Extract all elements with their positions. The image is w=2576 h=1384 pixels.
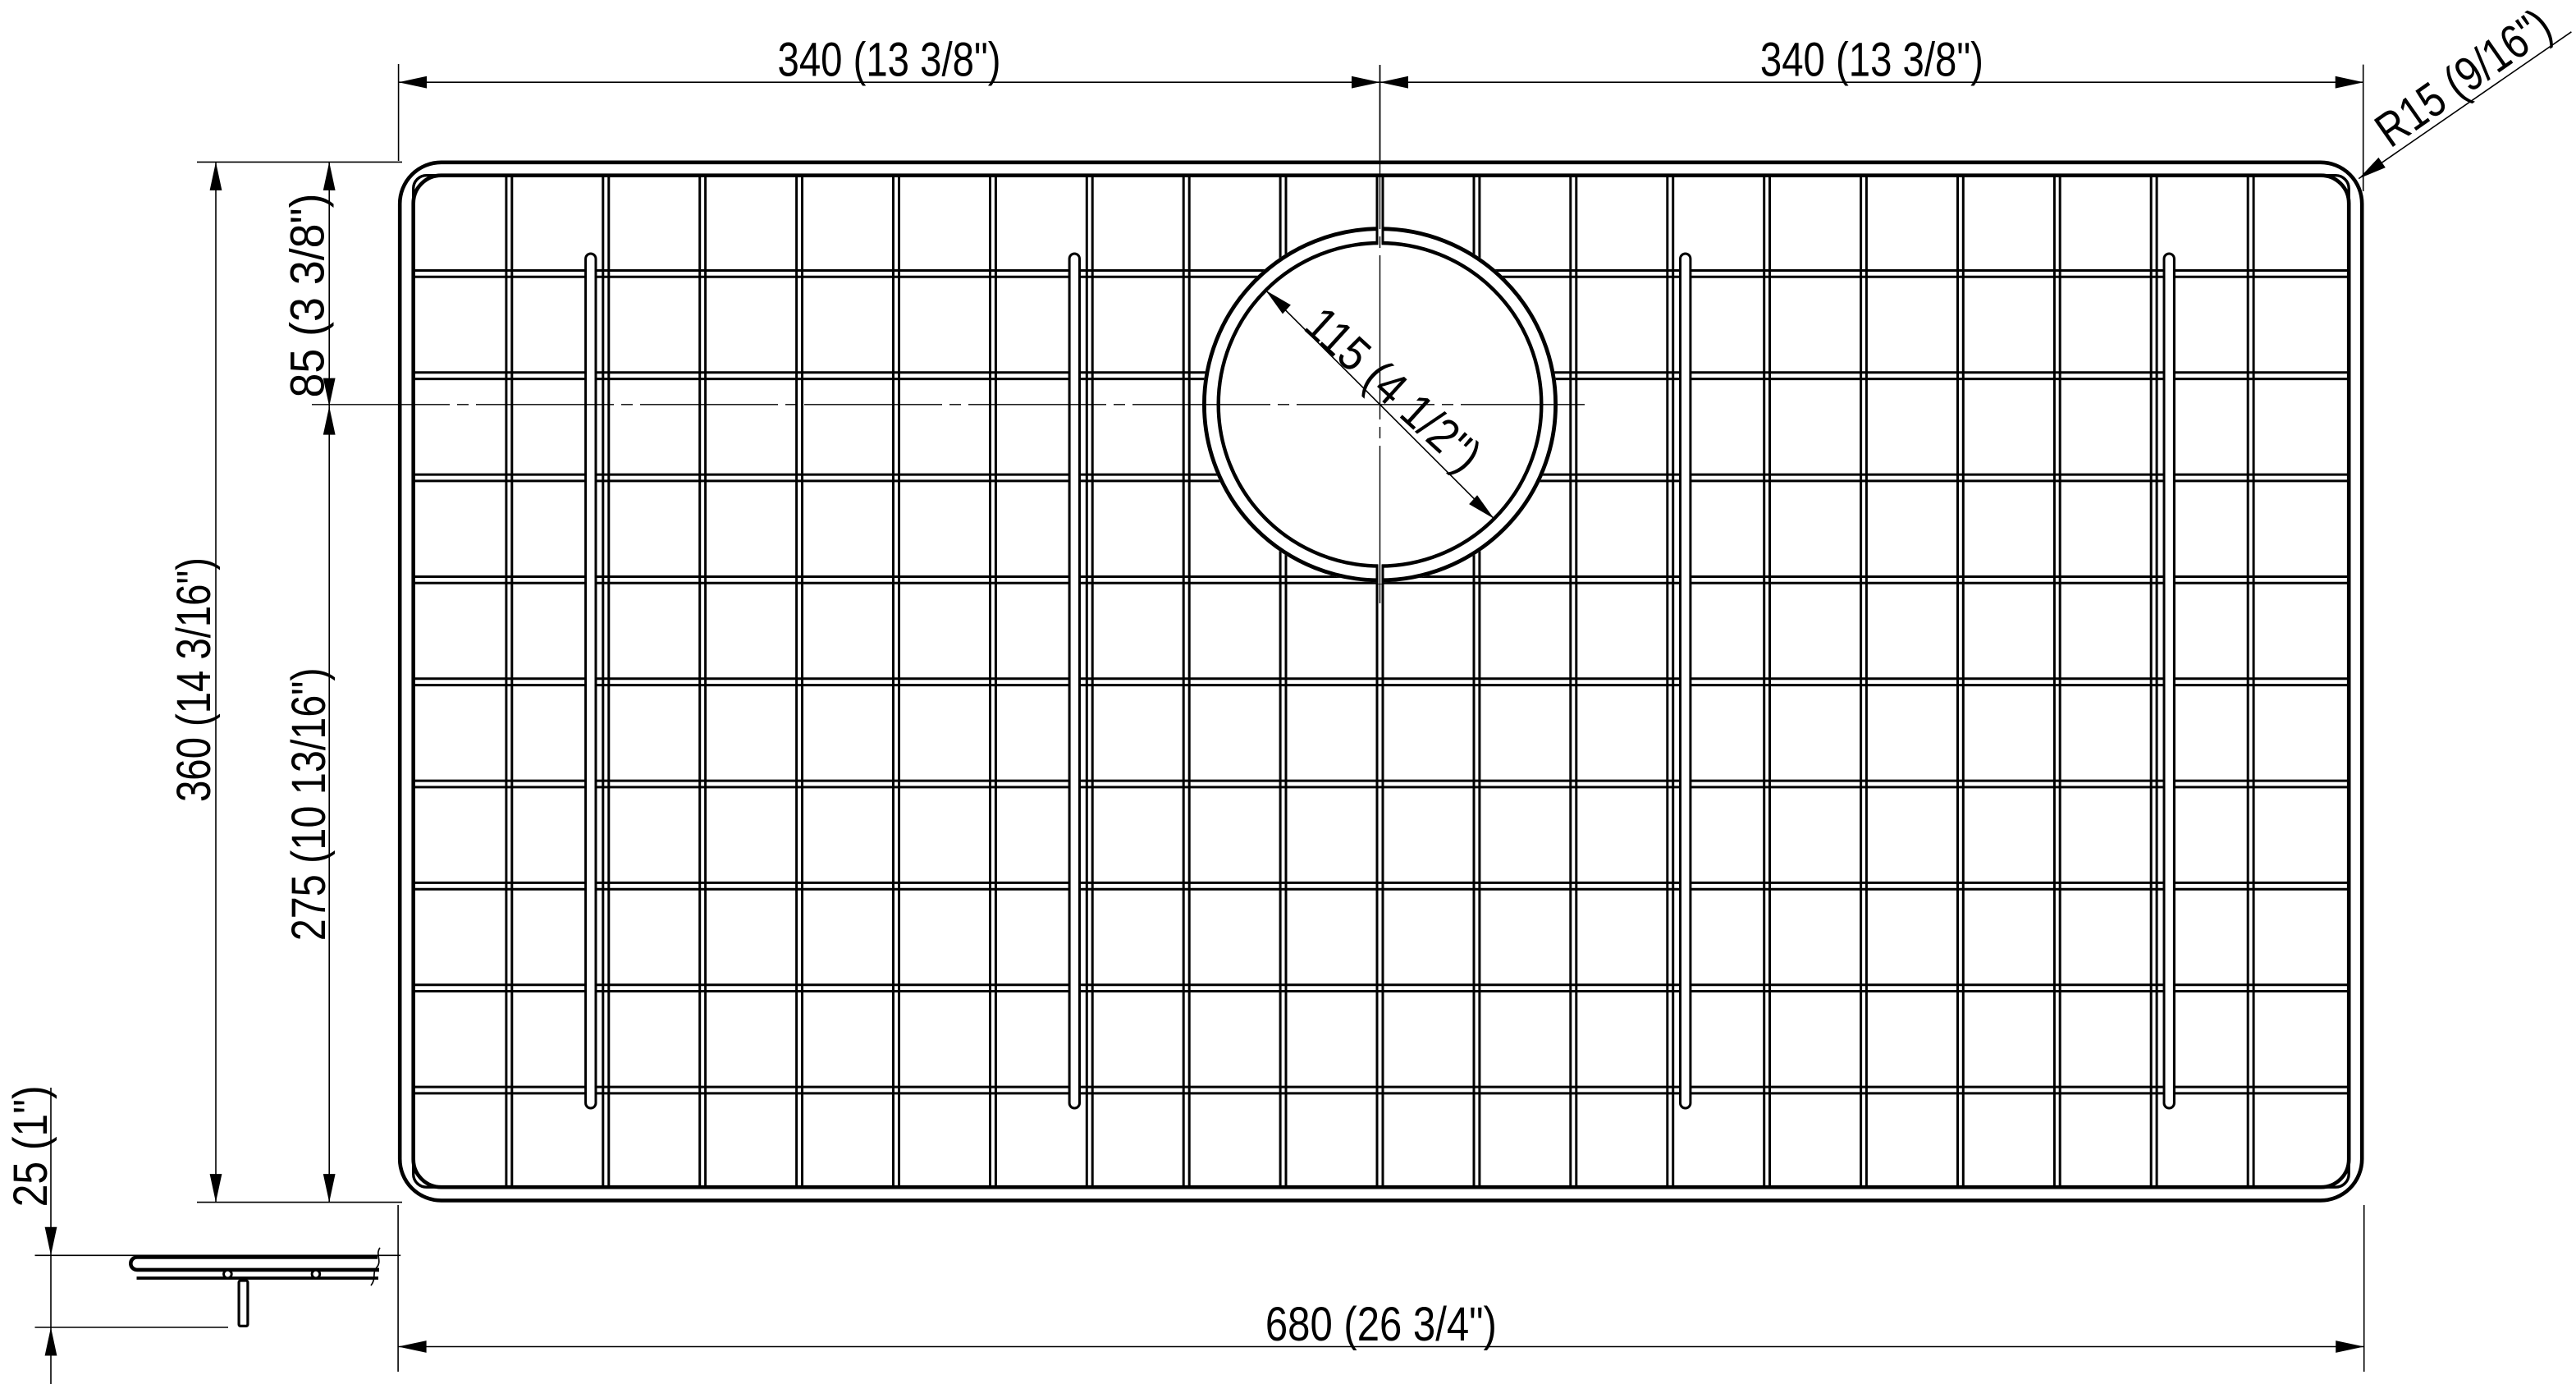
svg-text:680 (26 3/4"): 680 (26 3/4") bbox=[1265, 1298, 1497, 1351]
svg-text:340 (13 3/8"): 340 (13 3/8") bbox=[1760, 34, 1983, 87]
svg-text:25 (1"): 25 (1") bbox=[4, 1085, 57, 1207]
svg-text:275 (10 13/16"): 275 (10 13/16") bbox=[282, 667, 336, 941]
svg-text:85 (3 3/8"): 85 (3 3/8") bbox=[281, 194, 335, 398]
svg-text:360 (14 3/16"): 360 (14 3/16") bbox=[167, 557, 221, 802]
svg-text:340 (13 3/8"): 340 (13 3/8") bbox=[778, 34, 1001, 87]
